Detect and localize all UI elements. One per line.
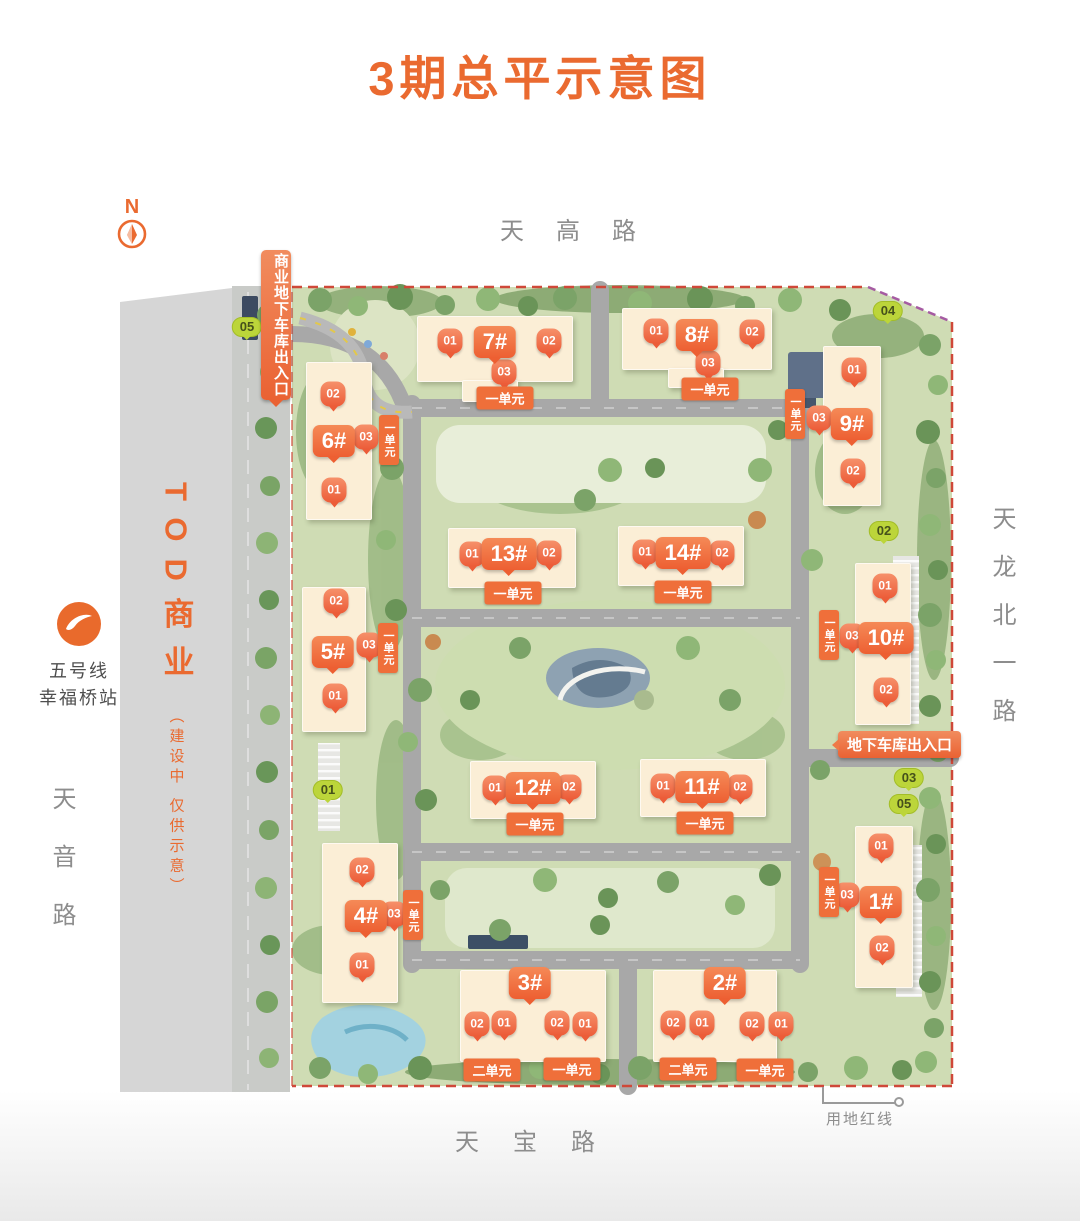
- unit-banner-4#: 一单元: [403, 890, 423, 940]
- building-label-4#[interactable]: 4#: [345, 900, 387, 932]
- building-label-12#[interactable]: 12#: [506, 772, 561, 804]
- unit-pin-13#-02[interactable]: 02: [537, 541, 562, 566]
- unit-banner-3#: 一单元: [543, 1058, 600, 1081]
- unit-pin-5#-02[interactable]: 02: [324, 589, 349, 614]
- unit-pin-8#-01[interactable]: 01: [644, 319, 669, 344]
- unit-pin-12#-01[interactable]: 01: [483, 776, 508, 801]
- unit-pin-3#-02[interactable]: 02: [545, 1011, 570, 1036]
- building-label-8#[interactable]: 8#: [676, 319, 718, 351]
- unit-pin-7#-02[interactable]: 02: [537, 329, 562, 354]
- unit-banner-7#: 一单元: [476, 387, 533, 410]
- unit-banner-9#: 一单元: [785, 389, 805, 439]
- unit-pin-6#-01[interactable]: 01: [322, 478, 347, 503]
- building-label-1#[interactable]: 1#: [860, 886, 902, 918]
- unit-pin-4#-02[interactable]: 02: [350, 858, 375, 883]
- building-label-11#[interactable]: 11#: [675, 771, 729, 803]
- unit-banner-5#: 一单元: [378, 623, 398, 673]
- unit-pin-8#-02[interactable]: 02: [740, 320, 765, 345]
- unit-banner-8#: 一单元: [681, 378, 738, 401]
- site-plan-page: 3期总平示意图 N: [0, 0, 1080, 1221]
- unit-pin-1#-01[interactable]: 01: [869, 834, 894, 859]
- unit-pin-10#-02[interactable]: 02: [874, 678, 899, 703]
- commercial-garage-entrance-banner[interactable]: 商业地下车库出入口: [261, 250, 291, 400]
- unit-banner-14#: 一单元: [654, 581, 711, 604]
- building-label-7#[interactable]: 7#: [474, 326, 516, 358]
- unit-banner-10#: 一单元: [819, 610, 839, 660]
- unit-pin-3#-01[interactable]: 01: [573, 1012, 598, 1037]
- unit-pin-9#-03[interactable]: 03: [807, 406, 832, 431]
- unit-pin-3#-02[interactable]: 02: [465, 1012, 490, 1037]
- building-label-6#[interactable]: 6#: [313, 425, 355, 457]
- unit-pin-14#-01[interactable]: 01: [633, 540, 658, 565]
- building-label-2#[interactable]: 2#: [704, 967, 746, 999]
- overlay-layer: 7#010203一单元8#010203一单元6#020301一单元5#02030…: [0, 0, 1080, 1221]
- unit-pin-11#-01[interactable]: 01: [651, 774, 676, 799]
- building-label-5#[interactable]: 5#: [312, 636, 354, 668]
- unit-pin-2#-01[interactable]: 01: [769, 1012, 794, 1037]
- zone-marker-05[interactable]: 05: [232, 317, 262, 337]
- unit-banner-1#: 一单元: [819, 867, 839, 917]
- unit-pin-9#-02[interactable]: 02: [841, 459, 866, 484]
- unit-pin-11#-02[interactable]: 02: [728, 775, 753, 800]
- building-label-9#[interactable]: 9#: [831, 408, 873, 440]
- unit-pin-9#-01[interactable]: 01: [842, 358, 867, 383]
- unit-pin-5#-01[interactable]: 01: [323, 684, 348, 709]
- zone-marker-01[interactable]: 01: [313, 780, 343, 800]
- unit-pin-7#-01[interactable]: 01: [438, 329, 463, 354]
- unit-banner-2#: 一单元: [736, 1059, 793, 1082]
- unit-banner-13#: 一单元: [484, 582, 541, 605]
- unit-pin-3#-01[interactable]: 01: [492, 1011, 517, 1036]
- unit-pin-14#-02[interactable]: 02: [710, 541, 735, 566]
- unit-pin-4#-01[interactable]: 01: [350, 953, 375, 978]
- unit-banner-3#: 二单元: [463, 1059, 520, 1082]
- unit-pin-2#-02[interactable]: 02: [740, 1012, 765, 1037]
- zone-marker-05[interactable]: 05: [889, 794, 919, 814]
- unit-banner-2#: 二单元: [659, 1058, 716, 1081]
- unit-pin-1#-02[interactable]: 02: [870, 936, 895, 961]
- garage-entrance-banner[interactable]: 地下车库出入口: [838, 731, 961, 758]
- zone-marker-04[interactable]: 04: [873, 301, 903, 321]
- unit-pin-2#-01[interactable]: 01: [690, 1011, 715, 1036]
- unit-pin-10#-01[interactable]: 01: [873, 574, 898, 599]
- building-label-10#[interactable]: 10#: [859, 622, 914, 654]
- unit-pin-6#-02[interactable]: 02: [321, 382, 346, 407]
- zone-marker-03[interactable]: 03: [894, 768, 924, 788]
- building-label-3#[interactable]: 3#: [509, 967, 551, 999]
- unit-pin-6#-03[interactable]: 03: [354, 425, 379, 450]
- building-label-13#[interactable]: 13#: [482, 538, 537, 570]
- unit-banner-12#: 一单元: [506, 813, 563, 836]
- building-label-14#[interactable]: 14#: [656, 537, 711, 569]
- unit-pin-2#-02[interactable]: 02: [661, 1011, 686, 1036]
- zone-marker-02[interactable]: 02: [869, 521, 899, 541]
- unit-banner-6#: 一单元: [379, 415, 399, 465]
- unit-banner-11#: 一单元: [676, 812, 733, 835]
